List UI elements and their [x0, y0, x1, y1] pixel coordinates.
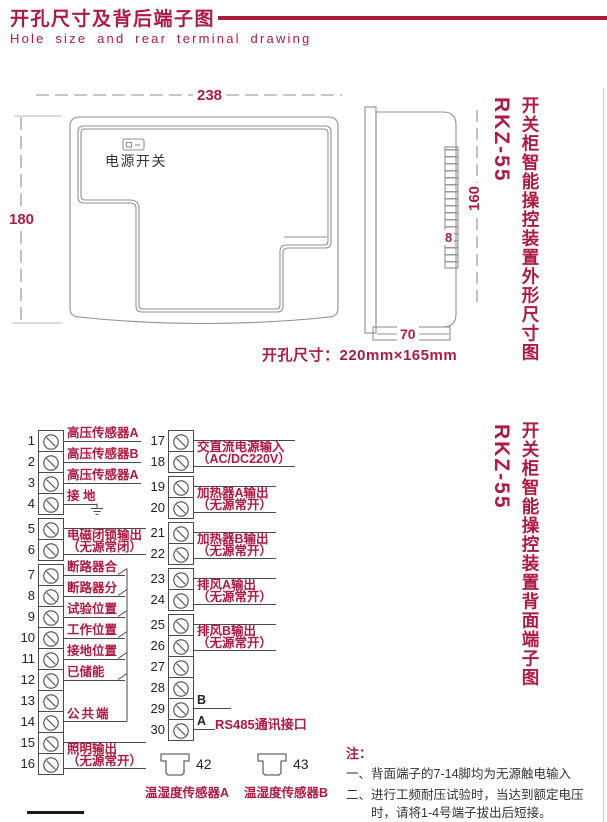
contact-connector-lines — [91, 504, 127, 722]
terminal-connector-overlay — [0, 0, 607, 822]
manual-page: 开孔尺寸及背后端子图 Hole size and rear terminal d… — [0, 0, 607, 822]
